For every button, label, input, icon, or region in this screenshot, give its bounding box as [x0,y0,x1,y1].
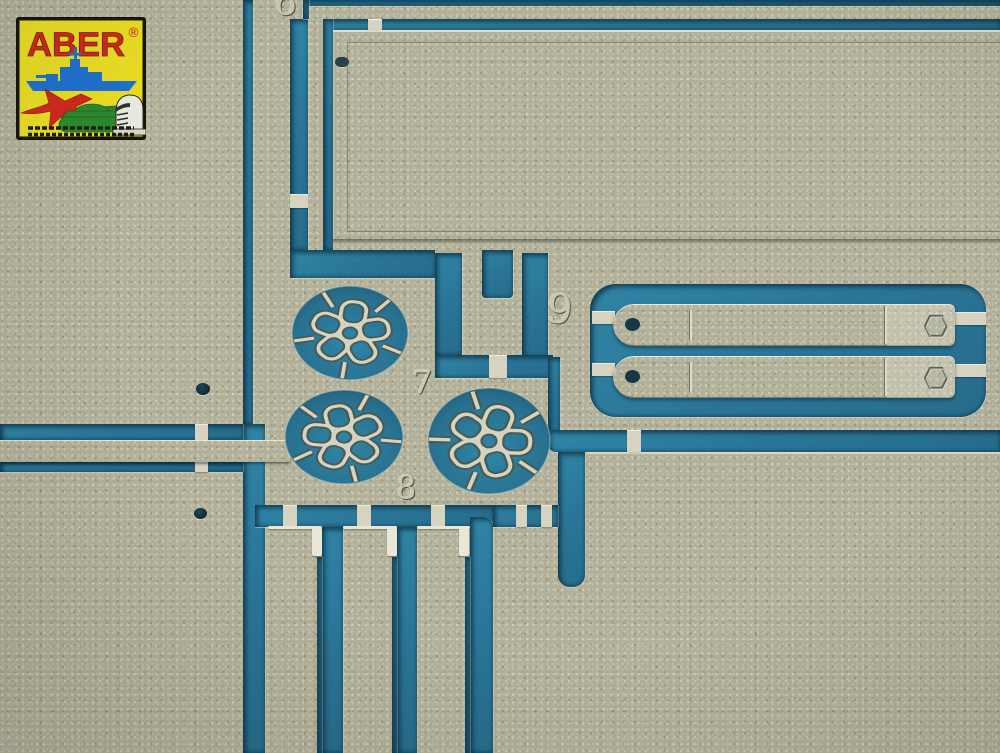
cutout-frame-horizontal-gap [323,19,1000,30]
strip-corner-tab [459,528,469,556]
cutout-lower-horizontal-channel [548,430,1000,452]
cutout-straps [590,284,986,417]
platform-edge-highlight [588,452,1000,454]
cutout-strip-step-2 [392,557,397,753]
cutout-frame-vertical-gap [323,19,333,250]
sprue-tab [950,364,986,377]
cutout-rail-corner-notch [303,0,309,19]
strap-etch-line [690,310,692,340]
cutout-strip-step-3 [465,557,470,753]
cutout-left-channel-lower [243,424,265,753]
cutout-strip-step-1 [317,557,322,753]
etched-hole [196,383,210,395]
strip-corner-tab [387,528,397,556]
sprue-tab [627,430,641,452]
photo-canvas: 6 7 8 9 ABER ® [0,0,1000,753]
sprue-tab [290,194,308,208]
sprue-tab [592,311,615,324]
panel-top-highlight [333,30,1000,32]
strap-hole [625,318,640,331]
panel-etched-border [347,42,1000,232]
strap-hole [625,370,640,383]
aber-logo: ABER ® [16,17,146,140]
registered-mark: ® [127,26,140,41]
cutout-top-sliver [303,0,1000,6]
part-number-8: 8 [396,472,416,504]
sprue-tab [368,19,382,30]
strap-part-lower [613,356,955,398]
strap-part-upper [613,304,955,346]
hex-nut-etch [915,307,951,343]
sprue-tab [195,424,208,440]
strip-corner-tab [312,528,322,556]
sprue-tab [950,312,986,325]
cutout-strip-gap-1 [322,527,343,753]
part-number-9: 9 [546,289,574,331]
sprue-tab [592,363,615,376]
cutout-bottom-vertical-channel [470,517,493,753]
cutout-left-channel-upper [243,0,253,424]
thin-strip-part [0,440,290,462]
panel-etched-slot [335,57,349,67]
etched-hole [194,508,207,519]
cutout-strip-gap-2 [397,527,417,753]
panel-bottom-shadow [333,239,1000,243]
strap-etch-line [690,362,692,392]
sprue-tab [195,462,208,472]
hex-nut-etch [915,359,951,395]
cutout-rail-gap [290,19,308,250]
part-number-6: 6 [274,0,297,22]
part-number-7: 7 [412,366,432,398]
